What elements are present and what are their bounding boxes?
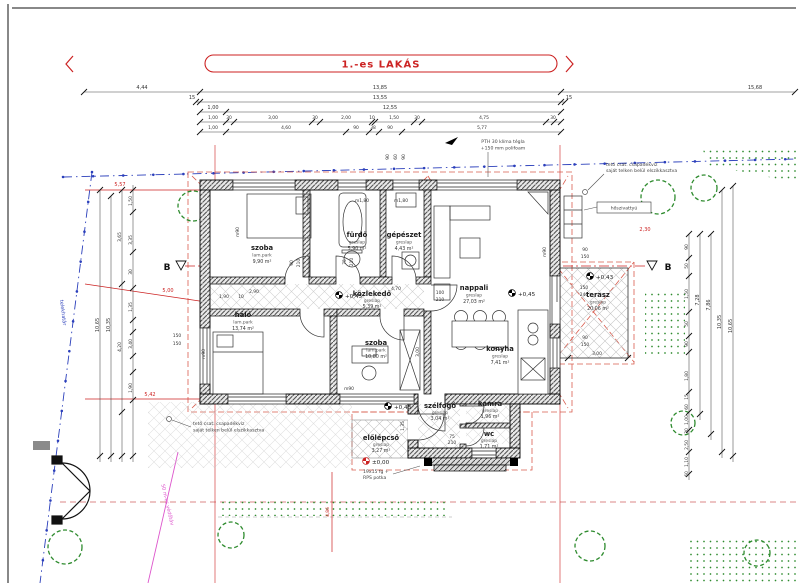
note-line: 19x15 fg +	[363, 469, 389, 475]
dim-label: 150	[581, 254, 590, 260]
room-area: 7,41 m²	[491, 360, 510, 366]
dim-label: 3,00	[415, 347, 421, 357]
room-name: szoba	[365, 339, 388, 347]
room-area: 27,03 m²	[463, 299, 485, 305]
room-floor: greslap	[349, 240, 365, 246]
dim-label: 30	[550, 115, 556, 121]
title-bracket-left	[66, 56, 73, 72]
dim-label: 30	[414, 115, 420, 121]
dim-label: 2,90	[249, 289, 259, 295]
room-label-szoba1: szoba lam.park 9,90 m²	[251, 244, 274, 265]
dim-label: 75	[342, 259, 348, 265]
dining-table	[452, 321, 508, 347]
note-line: RPS potka	[363, 475, 386, 481]
dim-label: 1,00	[684, 415, 690, 425]
dim-label: 90	[684, 341, 690, 347]
dim-label: 210	[296, 259, 302, 268]
tree-icon	[575, 531, 605, 561]
dim-label: 1,50	[128, 196, 134, 206]
room-area: 5,39 m²	[363, 304, 382, 310]
room-area: 1,96 m²	[481, 414, 500, 420]
note-steps: 19x15 fg + RPS potka	[363, 466, 420, 481]
room-floor: greslap	[492, 354, 508, 360]
note-line: saját telken belül elszikkasztva	[606, 167, 677, 174]
dim-label: 3,65	[117, 232, 123, 242]
room-floor: greslap	[481, 438, 497, 444]
dim-label: 4,86	[325, 507, 331, 517]
level-value: +0,43	[596, 275, 614, 281]
dim-label: 10,65	[95, 318, 101, 332]
section-triangle-icon	[176, 261, 186, 270]
dim-label: 90	[387, 125, 393, 131]
dim-label: 60	[684, 404, 690, 410]
dim-label: 30	[128, 269, 134, 275]
room-label-furdo: fürdő greslap 5,90 m²	[347, 230, 368, 252]
room-name: wc	[484, 430, 494, 438]
dim-label: 10,35	[106, 318, 112, 332]
dim-label: 1,00	[208, 115, 218, 121]
tree-icon	[48, 530, 82, 564]
note-line: +150 mm polifoam	[481, 146, 526, 152]
note-line: PTH 30 klíma tégla	[481, 138, 525, 145]
room-name: nappali	[460, 284, 488, 292]
room-area: 13,74 m²	[232, 326, 254, 332]
window-height: m1,80	[394, 198, 408, 204]
dim-label: 90	[684, 244, 690, 250]
room-floor: lam.park	[233, 320, 253, 326]
dim-label: 210	[349, 258, 355, 267]
section-label-left: B	[164, 263, 171, 273]
room-floor: greslap	[482, 408, 498, 414]
note-line: tető csat. csapadékvíz	[193, 420, 245, 427]
room-area: 10,80 m²	[365, 354, 387, 360]
utility-box	[33, 441, 50, 450]
window-height: m90	[235, 227, 241, 237]
room-floor: greslap	[466, 293, 482, 299]
room-floor: lam.park	[252, 253, 272, 259]
downspout-icon	[583, 190, 588, 195]
window-height: m1,80	[355, 198, 369, 204]
dim-label: 4,75	[479, 115, 489, 121]
dim-label: 90	[401, 154, 407, 160]
level-value: ±0,00	[372, 460, 390, 466]
dim-label: 210	[448, 440, 457, 446]
boundary-label: telekhatár	[58, 299, 68, 326]
room-name: terasz	[586, 291, 610, 299]
dim-label: 50	[684, 263, 690, 269]
heat-pump-unit	[564, 196, 582, 238]
note-line: saját telken belül elszikkasztva	[193, 427, 264, 434]
note-line: tető csat. csapadékvíz	[606, 161, 658, 168]
room-name: szoba	[251, 244, 274, 252]
dim-label: 60	[684, 471, 690, 477]
room-floor: greslap	[396, 240, 412, 246]
dim-label: 3,00	[268, 115, 278, 121]
north-arrow-icon	[445, 137, 458, 145]
room-name: gépészet	[387, 231, 423, 239]
room-area: 20,06 m²	[587, 306, 609, 312]
dim-label: 2,50	[684, 440, 690, 450]
dim-label: 5,00	[162, 288, 173, 294]
dim-label: 150	[173, 333, 182, 339]
dim-label: 1,00	[208, 125, 218, 131]
window-height: m90	[344, 386, 354, 392]
dim-label: 2,00	[341, 115, 351, 121]
dim-label: 90	[582, 247, 588, 253]
dim-label: 15	[566, 95, 572, 101]
room-floor: lam.park	[366, 348, 386, 354]
room-area: 4,43 m²	[395, 246, 414, 252]
dim-label: 7,28	[695, 294, 701, 305]
dim-label: 1,80	[684, 371, 690, 381]
dim-label: 1,35	[400, 421, 406, 431]
dim-label: 10,65	[728, 319, 734, 333]
title-bracket-right	[566, 56, 573, 72]
dim-label: 1,90	[219, 294, 229, 300]
room-area: 3,27 m²	[372, 448, 391, 454]
dim-label: 30	[312, 115, 318, 121]
room-area: 3,04 m²	[431, 416, 450, 422]
dim-label: 150	[581, 342, 590, 348]
dim-label: 30	[684, 428, 690, 434]
entrance-steps	[424, 458, 518, 471]
dim-label: 3,40	[128, 339, 134, 349]
dim-label: 5,57	[114, 182, 125, 188]
title-block: 1.-es LAKÁS	[66, 55, 573, 145]
dim-label: 1,90	[128, 383, 134, 393]
window-height: m90	[201, 349, 207, 359]
room-area: 5,90 m²	[348, 246, 367, 252]
dim-label: 2,30	[639, 227, 650, 233]
level-marker: ±0,00	[363, 458, 390, 466]
dim-label: 1,10	[684, 457, 690, 467]
dim-label: 15,68	[748, 85, 762, 91]
room-name: kamra	[478, 400, 503, 408]
dim-label: 4,70	[391, 286, 401, 292]
note-heat-pump: hőszivattyú	[584, 202, 651, 213]
note-wall-spec: PTH 30 klíma tégla +150 mm polifoam	[481, 138, 526, 177]
dim-label: 38	[370, 125, 376, 131]
room-area: 9,90 m²	[253, 259, 272, 265]
protection-label: 50 m-es védőtáv	[159, 483, 175, 526]
dim-label: 60	[393, 154, 399, 160]
dim-label: 3,35	[128, 235, 134, 245]
dim-label: 10	[238, 294, 244, 300]
dim-label: 50	[684, 321, 690, 327]
dim-label: 90	[385, 154, 391, 160]
floor-plan-drawing: telekhatár 50 m-es védőtáv	[0, 0, 800, 583]
dim-label: 10	[369, 115, 375, 121]
room-floor: greslap	[364, 298, 380, 304]
dim-label: 10,35	[717, 315, 723, 329]
dim-label: 4,20	[117, 342, 123, 352]
section-triangle-icon	[647, 261, 657, 270]
dim-label: 1,35	[128, 302, 134, 312]
room-name: szélfogó	[424, 402, 456, 410]
note-line: hőszivattyú	[611, 205, 638, 212]
dim-label: 12,55	[383, 105, 397, 111]
room-area: 1,71 m²	[480, 444, 499, 450]
dim-label: 1,00	[207, 105, 218, 111]
dim-label: 90	[353, 125, 359, 131]
section-label-right: B	[665, 263, 672, 273]
room-label-szoba2: szoba lam.park 10,80 m²	[365, 339, 388, 360]
level-value: +0,45	[345, 294, 363, 300]
dim-label: 100	[436, 290, 445, 296]
dim-label: 5,42	[144, 392, 155, 398]
dim-label: 90	[582, 335, 588, 341]
room-floor: greslap	[590, 300, 606, 306]
dim-label: 210	[436, 297, 445, 303]
room-floor: greslap	[373, 442, 389, 448]
page-title: 1.-es LAKÁS	[342, 58, 421, 71]
tree-icon	[218, 522, 244, 548]
window-height: m90	[542, 247, 548, 257]
room-name: előlépcső	[363, 433, 399, 442]
level-value: +0,43	[394, 405, 412, 411]
dim-label: 1,50	[389, 115, 399, 121]
level-value: +0,45	[518, 292, 536, 298]
dim-label: 13,55	[373, 95, 387, 101]
note-rainwater-right: tető csat. csapadékvíz saját telken belü…	[583, 161, 678, 195]
dim-label: 15	[684, 394, 690, 400]
room-name: fürdő	[347, 230, 368, 239]
dim-label: 1,50	[684, 289, 690, 299]
dim-label: 75	[449, 434, 455, 440]
gate	[52, 456, 90, 524]
room-name: háló	[235, 311, 252, 319]
dim-label: 4,44	[136, 85, 147, 91]
tree-icon	[671, 411, 695, 435]
dim-label: 13,85	[373, 85, 387, 91]
room-name: konyha	[486, 345, 514, 353]
kitchen-counter	[518, 310, 548, 394]
floor-plan-sheet: telekhatár 50 m-es védőtáv	[0, 0, 800, 583]
dim-label: 150	[173, 341, 182, 347]
dim-label: 4,60	[281, 125, 291, 131]
dim-label: 7,86	[706, 299, 712, 310]
room-floor: greslap	[432, 410, 448, 416]
tree-icon	[691, 175, 717, 201]
dim-label: 90	[289, 260, 295, 266]
terrace-slab	[560, 268, 628, 358]
dim-label: 15	[189, 95, 195, 101]
room-label-halo: háló lam.park 13,74 m²	[232, 311, 254, 332]
dim-label: 30	[226, 115, 232, 121]
dim-label: 5,77	[477, 125, 487, 131]
dim-label: 3,00	[592, 351, 602, 357]
